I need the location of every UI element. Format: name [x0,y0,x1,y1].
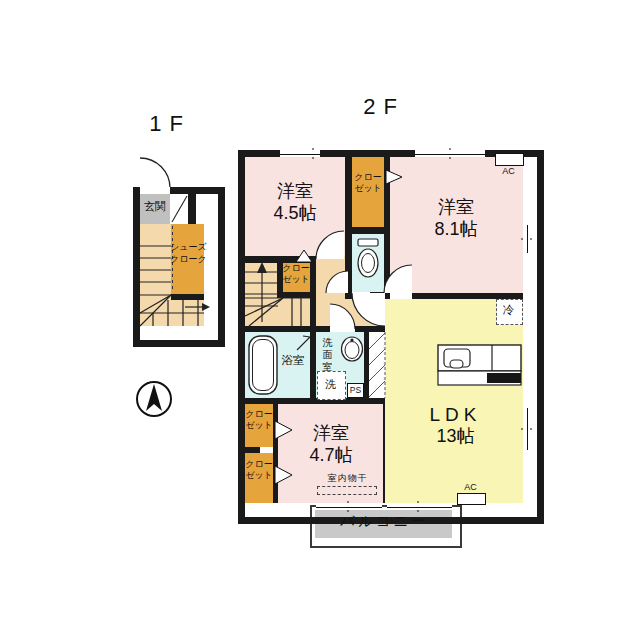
closet-a-label: クロー ゼット [244,409,274,430]
closet-line2: ゼット [352,183,384,194]
washer-label: 洗 [317,377,344,392]
closet-line1: クロー [244,409,274,420]
entrance-door-arc [140,158,170,188]
room-47-name: 洋室 [283,422,379,444]
closet-top-label: クロー ゼット [352,172,384,193]
bathroom-label: 浴室 [274,353,312,368]
window-bottom-ldk [387,503,452,510]
closet-line1: クロー [281,263,311,274]
floor-2f-title: 2F [349,94,419,120]
room-81-label: 洋室 8.1帖 [396,196,516,240]
ac-box-81 [495,153,524,166]
refrigerator-label: 冷 [496,303,521,318]
room-45-label: 洋室 4.5帖 [246,180,344,224]
shoes-cloak-line1: シューズ [170,242,204,254]
pipe-space-label: PS [347,385,364,395]
window-bottom-47 [316,503,382,510]
closet-line2: ゼット [281,274,311,285]
closet-b-label: クロー ゼット [244,459,274,480]
room-45-name: 洋室 [246,180,344,202]
washroom-label: 洗面室 [321,337,334,373]
closet-line1: クロー [244,459,274,470]
window-top-45 [280,150,320,157]
toilet-icon [358,239,378,277]
hatch-lines [369,332,385,398]
floor-plan: 1F 2F バルコニー 玄関 シューズ クローク [0,0,640,640]
door-swings [297,231,412,350]
1f-genkan-label: 玄関 [139,199,171,214]
room-45-size: 4.5帖 [246,202,344,224]
bathtub-icon [249,336,277,394]
ldk-name: LDK [398,404,513,426]
ac-box-ldk [457,493,486,505]
plan-linework [0,0,640,640]
indoor-drying-rack [317,486,377,495]
1f-entrance-opening [140,187,170,194]
ac-81-label: AC [495,166,522,176]
stairs-1f-arrow [202,303,210,311]
window-right-ldk [523,408,530,450]
room-81-name: 洋室 [396,196,516,218]
room-47-label: 洋室 4.7帖 [283,422,379,466]
washbasin-icon [342,337,363,361]
genkan-door-line [172,196,187,222]
room-ldk-label: LDK 13帖 [398,404,513,447]
room-47-size: 4.7帖 [283,444,379,466]
closet-45-label: クロー ゼット [281,263,311,284]
indoor-drying-label: 室内物干 [315,472,380,485]
balcony-label: バルコニー [332,512,437,531]
floor-1f-title: 1F [135,111,205,137]
window-right-81 [523,225,530,253]
ldk-size: 13帖 [398,426,513,447]
stairs-2f-arrow [257,262,267,273]
window-top-81 [415,150,485,157]
ac-ldk-label: AC [457,482,484,492]
room-81-size: 8.1帖 [396,218,516,240]
kitchen-counter-icon [438,345,521,385]
shoes-cloak-line2: クローク [170,254,204,266]
1f-shoes-cloak-label: シューズ クローク [170,242,204,265]
closet-line2: ゼット [244,420,274,431]
closet-line1: クロー [352,172,384,183]
closet-line2: ゼット [244,470,274,481]
compass-north-icon [137,382,171,416]
